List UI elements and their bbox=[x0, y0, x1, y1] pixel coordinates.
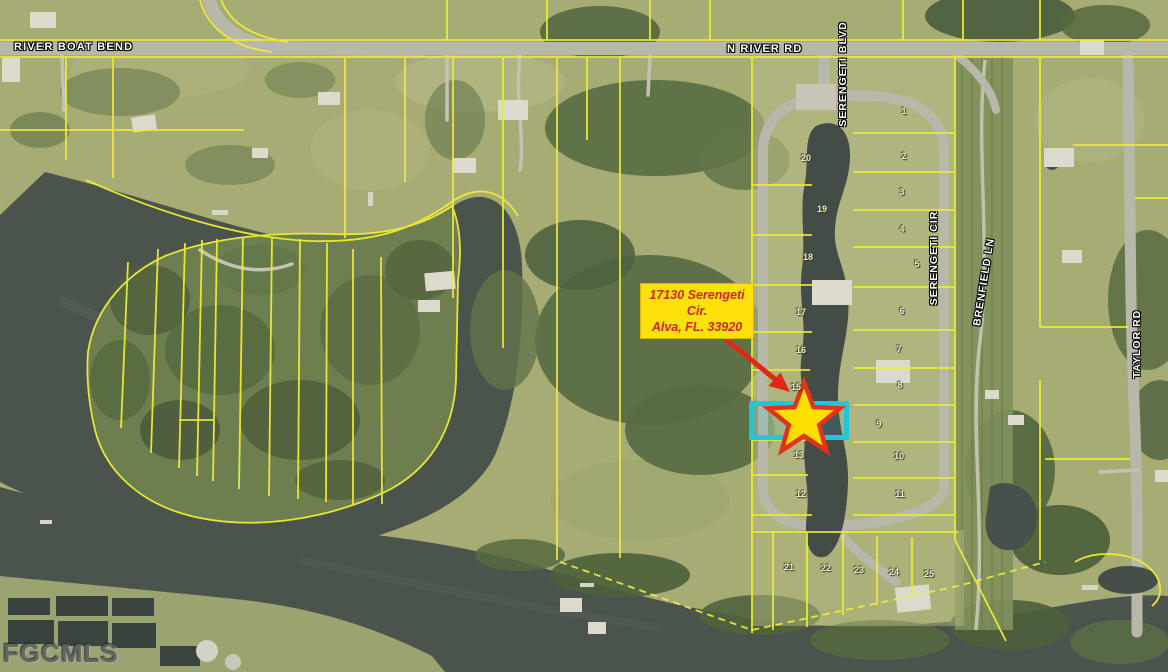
lot-number-7: 7 bbox=[896, 344, 901, 354]
road-label-n-river-rd: N RIVER RD bbox=[727, 43, 803, 55]
address-line-2: Alva, FL. 33920 bbox=[643, 319, 751, 335]
lot-number-13: 13 bbox=[794, 450, 804, 460]
tree-cover bbox=[10, 0, 1168, 664]
buildings bbox=[2, 12, 1168, 634]
lot-number-2: 2 bbox=[901, 151, 906, 161]
pointer-arrow-head bbox=[768, 373, 790, 393]
road-label-river-boat-bend: RIVER BOAT BEND bbox=[14, 41, 133, 53]
lot-number-5: 5 bbox=[914, 259, 919, 269]
address-line-1: 17130 Serengeti Cir. bbox=[643, 287, 751, 319]
lot-number-9: 9 bbox=[876, 419, 881, 429]
road-label-serengeti-cir: SERENGETI CIR bbox=[928, 211, 940, 306]
peninsula bbox=[87, 206, 460, 523]
lot-number-24: 24 bbox=[889, 567, 899, 577]
road-label-brenfield-ln: BRENFIELD LN bbox=[971, 237, 997, 327]
lot-number-21: 21 bbox=[784, 562, 794, 572]
aerial-map: RIVER BOAT BEND N RIVER RD SERENGETI BLV… bbox=[0, 0, 1168, 672]
lot-number-11: 11 bbox=[895, 489, 905, 499]
lot-number-22: 22 bbox=[821, 563, 831, 573]
lot-number-4: 4 bbox=[899, 224, 904, 234]
lot-number-20: 20 bbox=[801, 153, 811, 163]
highlight-parcel-box bbox=[749, 401, 849, 440]
lot-number-1: 1 bbox=[901, 106, 906, 116]
lot-number-25: 25 bbox=[924, 569, 934, 579]
address-annotation: 17130 Serengeti Cir. Alva, FL. 33920 bbox=[640, 283, 754, 339]
road-label-serengeti-blvd: SERENGETI BLVD bbox=[837, 21, 849, 126]
marker-overlay bbox=[0, 0, 1168, 672]
lot-number-15: 15 bbox=[791, 382, 801, 392]
lot-number-12: 12 bbox=[796, 489, 806, 499]
lot-number-18: 18 bbox=[803, 252, 813, 262]
terrain bbox=[0, 0, 1168, 672]
lot-number-17: 17 bbox=[796, 307, 806, 317]
lot-number-6: 6 bbox=[899, 306, 904, 316]
subdivision-ground bbox=[752, 57, 964, 626]
lot-number-8: 8 bbox=[897, 380, 902, 390]
roads bbox=[0, 0, 1168, 632]
lot-number-19: 19 bbox=[817, 204, 827, 214]
lot-number-10: 10 bbox=[894, 451, 904, 461]
brenfield-strip bbox=[955, 57, 1013, 630]
lot-number-23: 23 bbox=[854, 565, 864, 575]
lot-number-16: 16 bbox=[796, 345, 806, 355]
subdivision-lake bbox=[801, 123, 1158, 594]
mls-watermark: FGCMLS bbox=[3, 638, 119, 669]
lot-number-3: 3 bbox=[899, 187, 904, 197]
road-label-taylor-rd: TAYLOR RD bbox=[1131, 310, 1143, 379]
aerial-basemap bbox=[0, 0, 1168, 672]
parcel-lines bbox=[0, 0, 1168, 641]
